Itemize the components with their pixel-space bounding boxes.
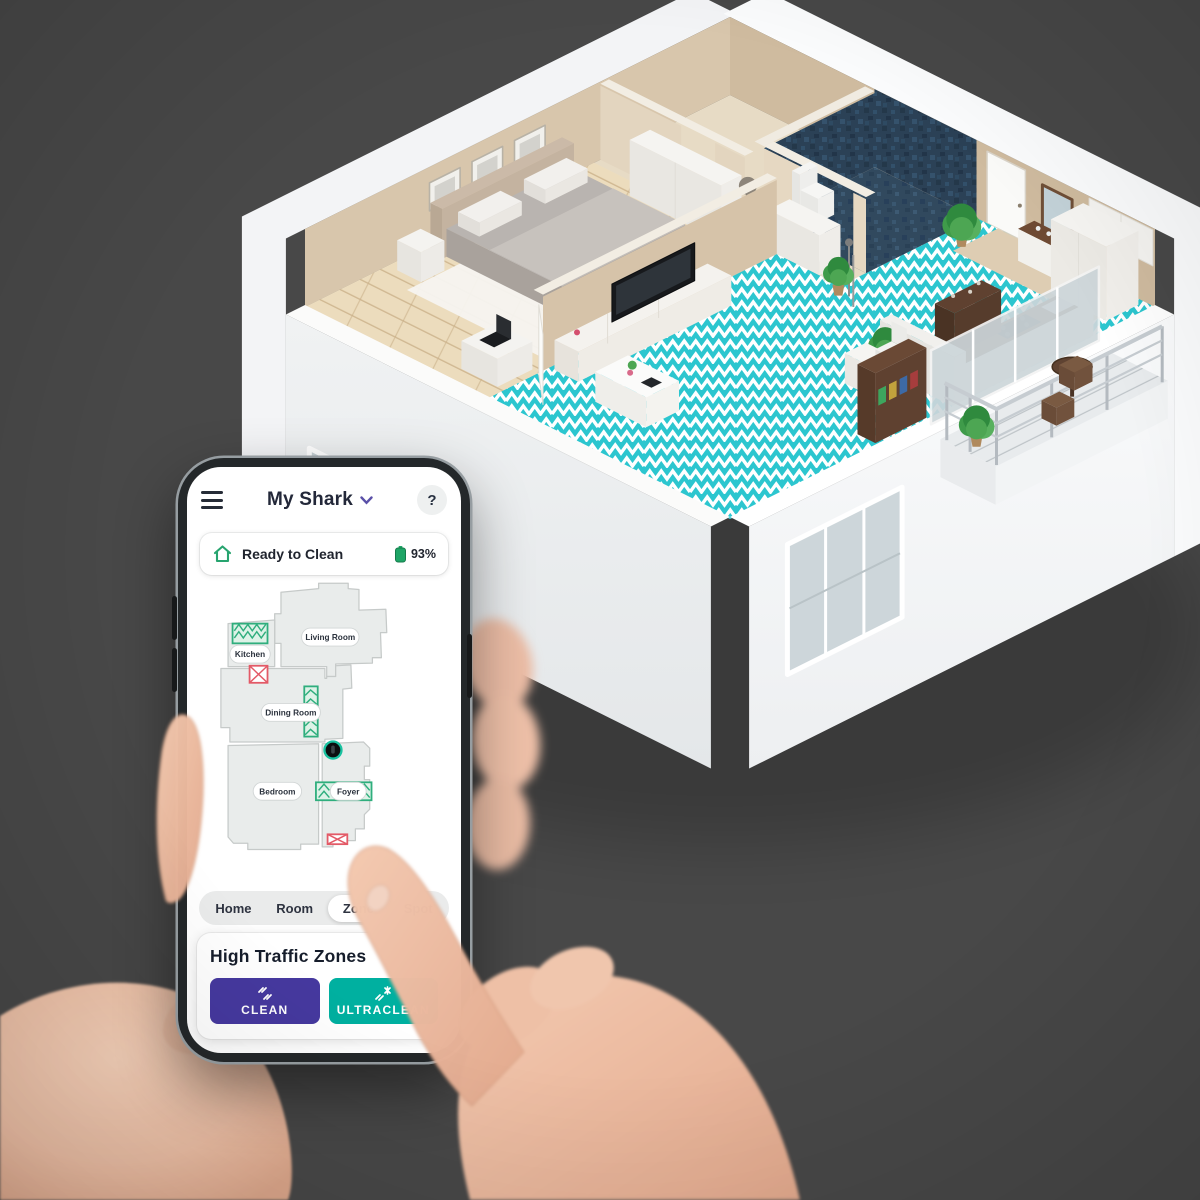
left-thumb <box>157 715 203 903</box>
right-hand-pointing <box>0 0 1200 1200</box>
scene: My Shark ? Ready to Clean 93% <box>0 0 1200 1200</box>
